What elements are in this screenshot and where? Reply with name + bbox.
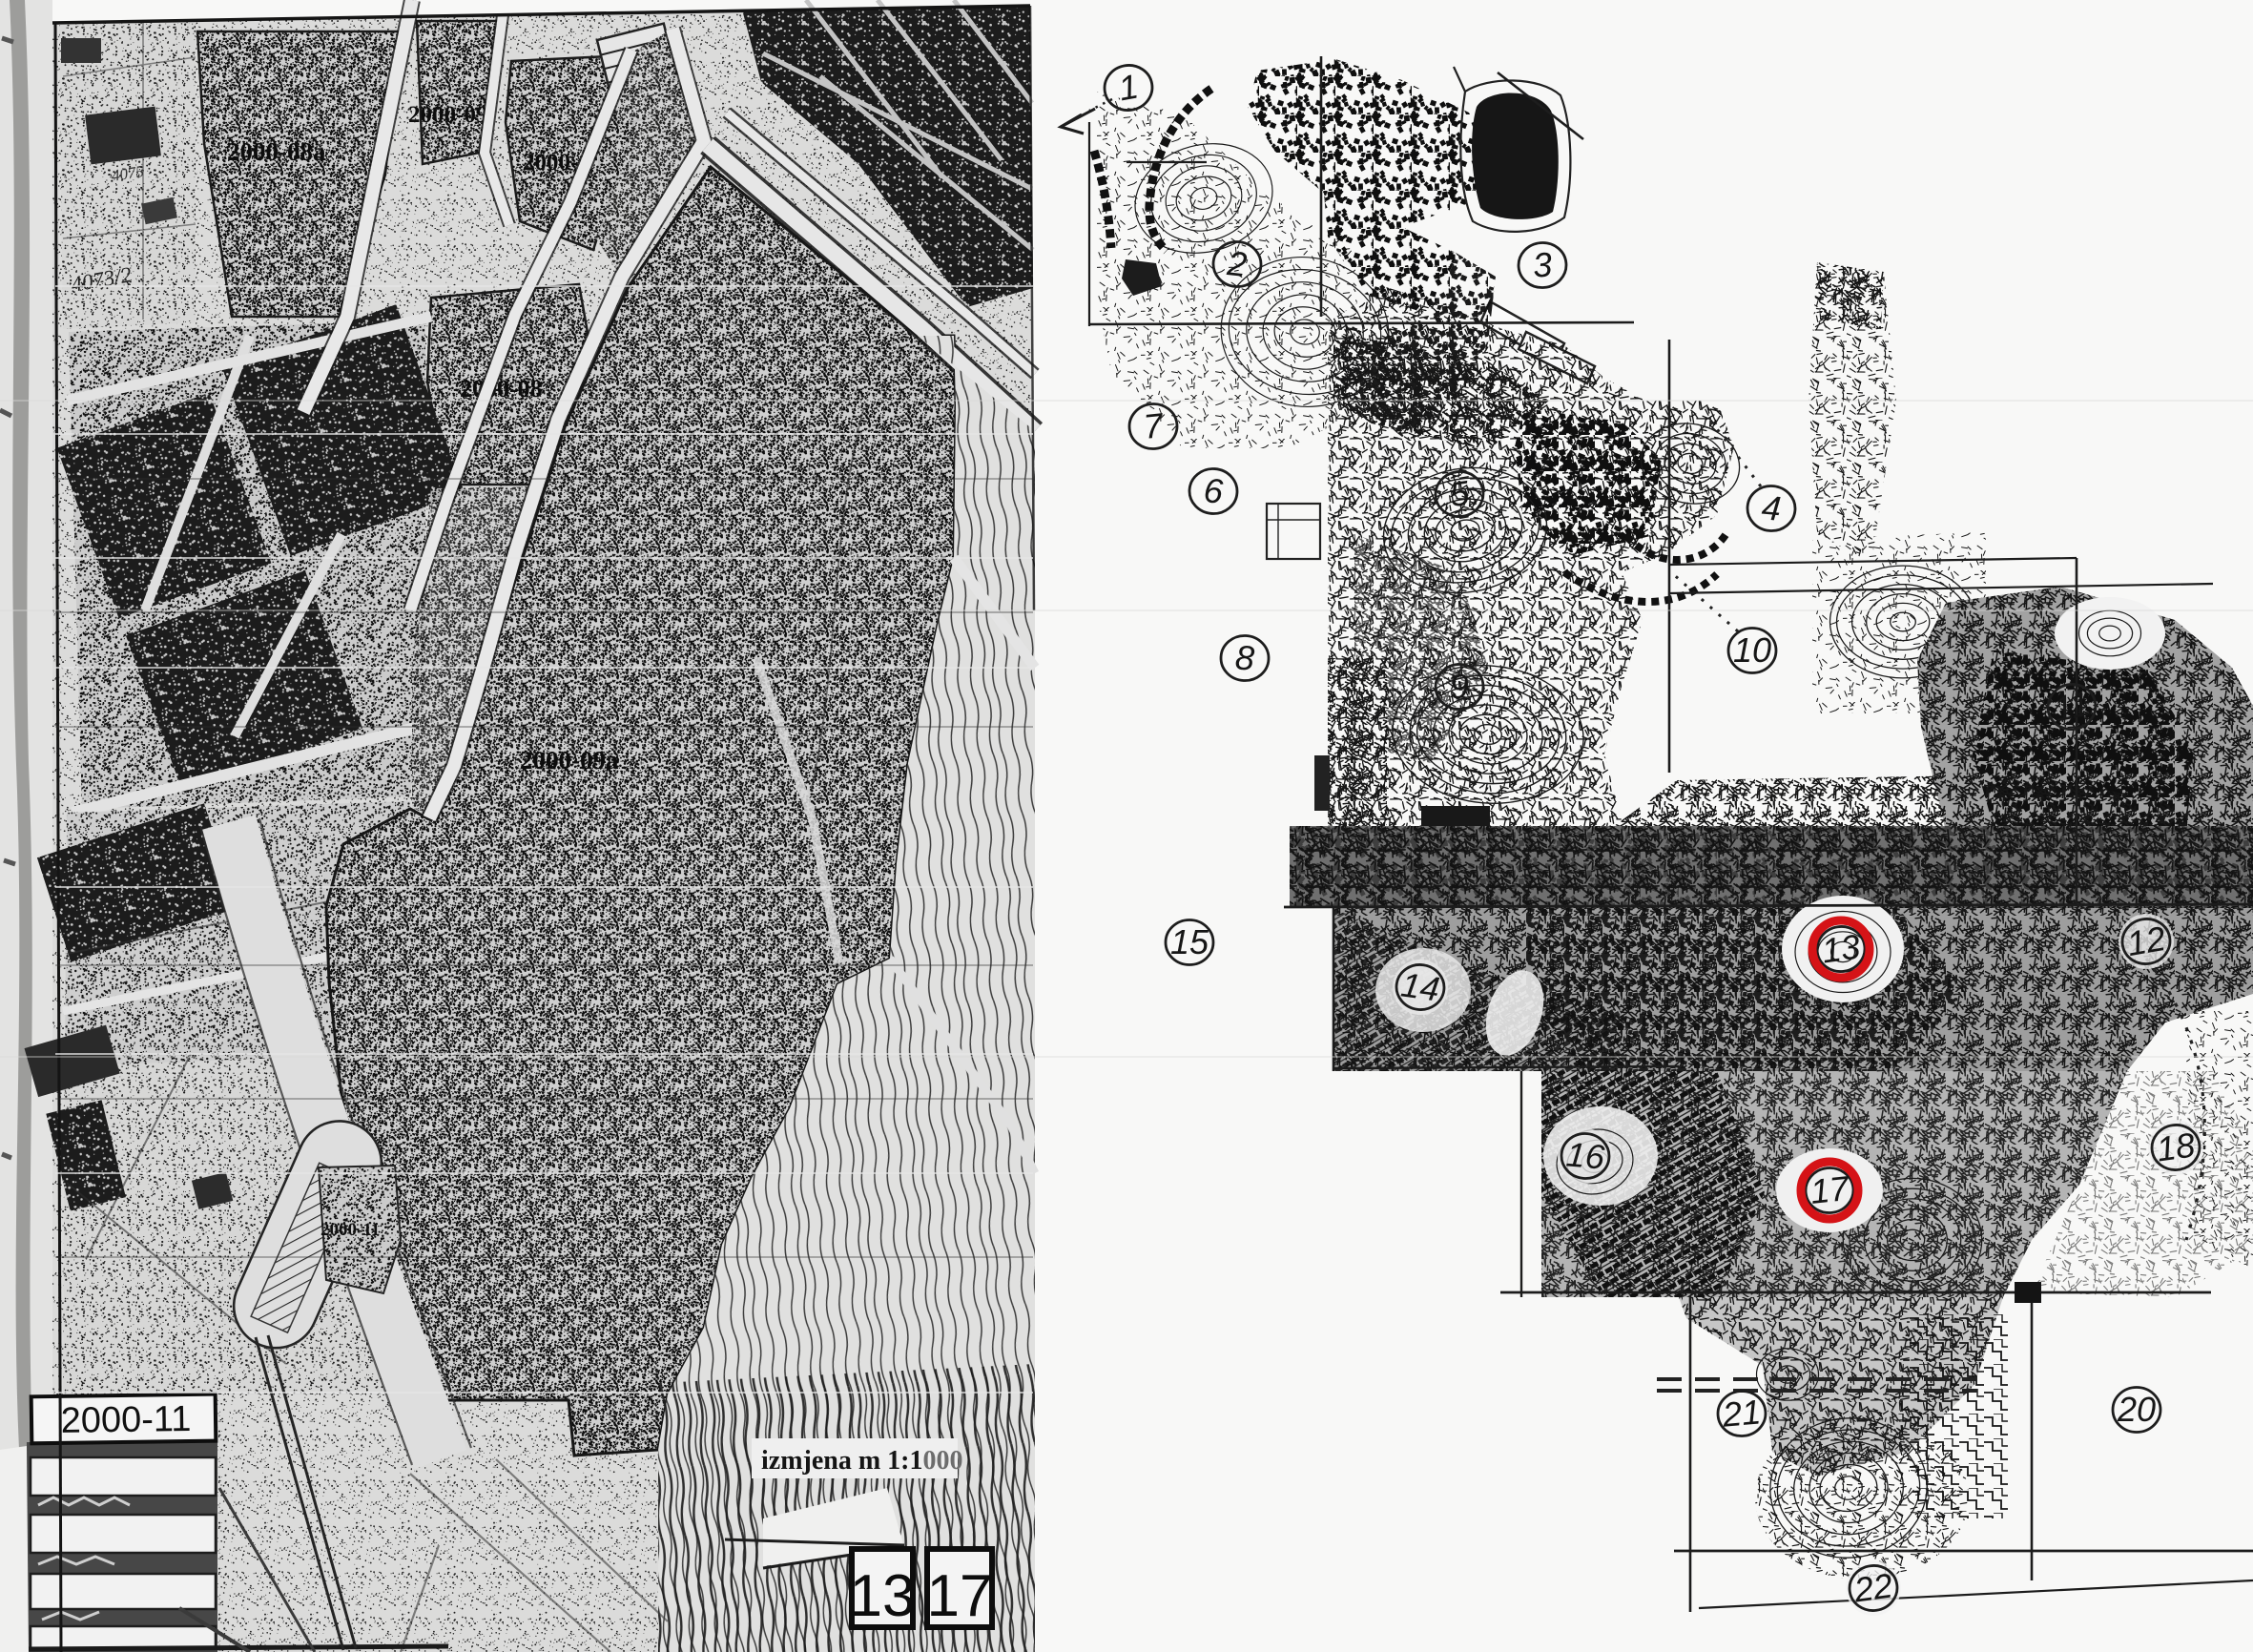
svg-text:2000-09a: 2000-09a xyxy=(520,746,619,774)
svg-text:6: 6 xyxy=(1203,470,1226,510)
svg-text:16: 16 xyxy=(1564,1134,1606,1176)
svg-text:8: 8 xyxy=(1234,638,1255,678)
svg-text:13: 13 xyxy=(850,1563,916,1629)
svg-text:12: 12 xyxy=(2124,919,2169,963)
svg-text:21: 21 xyxy=(1720,1392,1762,1434)
svg-text:2000-11: 2000-11 xyxy=(320,1220,380,1240)
svg-text:10: 10 xyxy=(1733,630,1771,670)
svg-text:17: 17 xyxy=(927,1563,993,1629)
svg-text:2000-09: 2000-09 xyxy=(408,102,487,128)
svg-text:13: 13 xyxy=(1819,926,1862,970)
svg-text:izmjena m 1:1000: izmjena m 1:1000 xyxy=(761,1446,963,1476)
svg-text:2000-08a: 2000-08a xyxy=(227,137,326,166)
svg-text:14: 14 xyxy=(1398,964,1441,1008)
svg-text:3: 3 xyxy=(1531,244,1554,285)
svg-text:17: 17 xyxy=(1809,1168,1852,1211)
svg-text:2: 2 xyxy=(1225,243,1249,284)
svg-text:4: 4 xyxy=(1760,487,1783,528)
svg-text:2000-11: 2000-11 xyxy=(60,1399,191,1441)
svg-text:20: 20 xyxy=(2117,1390,2156,1429)
svg-text:22: 22 xyxy=(1850,1565,1894,1609)
svg-text:2000-08: 2000-08 xyxy=(460,375,543,403)
svg-text:15: 15 xyxy=(1170,922,1209,961)
svg-text:18: 18 xyxy=(2154,1125,2197,1168)
svg-text:9: 9 xyxy=(1449,666,1471,706)
